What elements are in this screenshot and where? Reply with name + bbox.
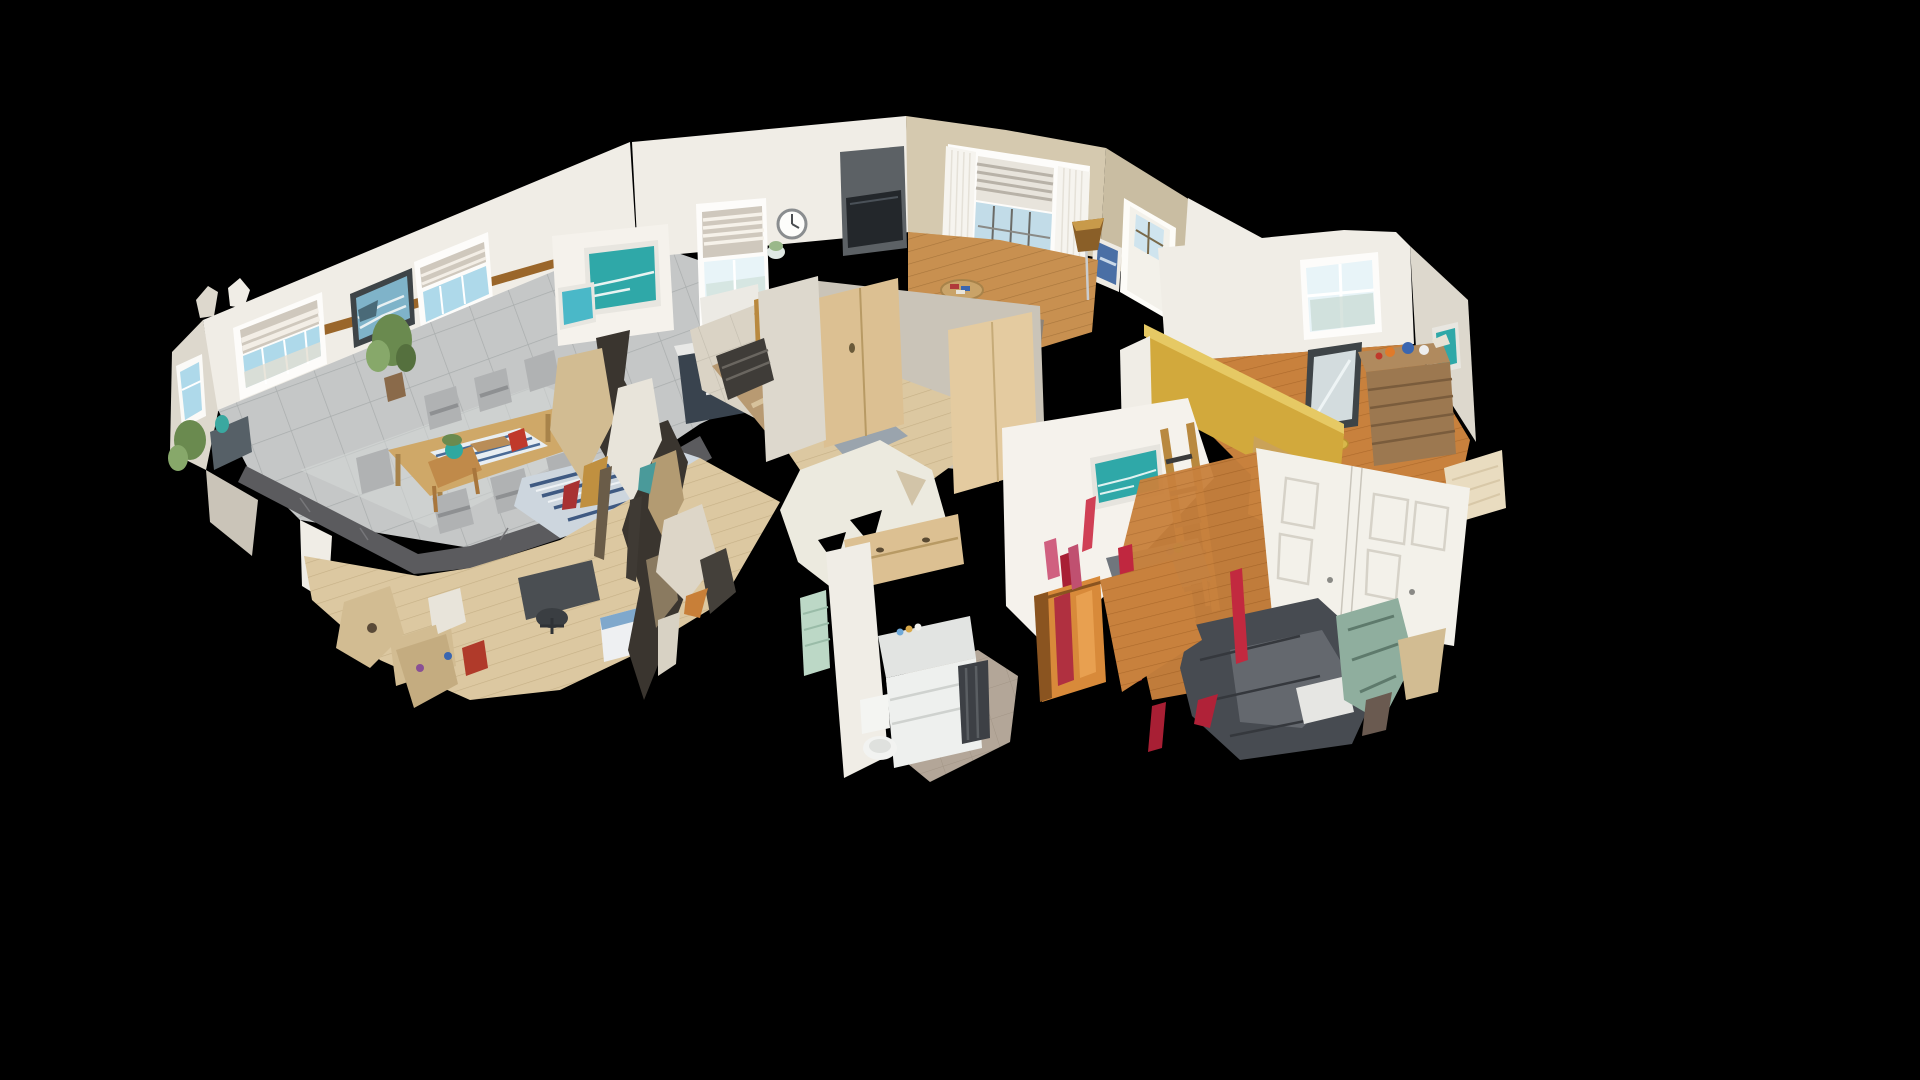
tv (846, 190, 903, 248)
teal-vase (215, 415, 229, 433)
mint-shelf (800, 590, 830, 676)
dollhouse-canvas (0, 0, 1920, 1080)
teal-art-large (584, 240, 661, 316)
bedroom-window (1300, 252, 1382, 340)
wooden-dresser (1358, 334, 1456, 466)
wall-clock (778, 210, 806, 238)
dark-towels (958, 660, 990, 744)
dollhouse-3d-view[interactable] (0, 0, 1920, 1080)
orange-closet (1034, 576, 1106, 702)
teal-art-small (558, 282, 596, 330)
